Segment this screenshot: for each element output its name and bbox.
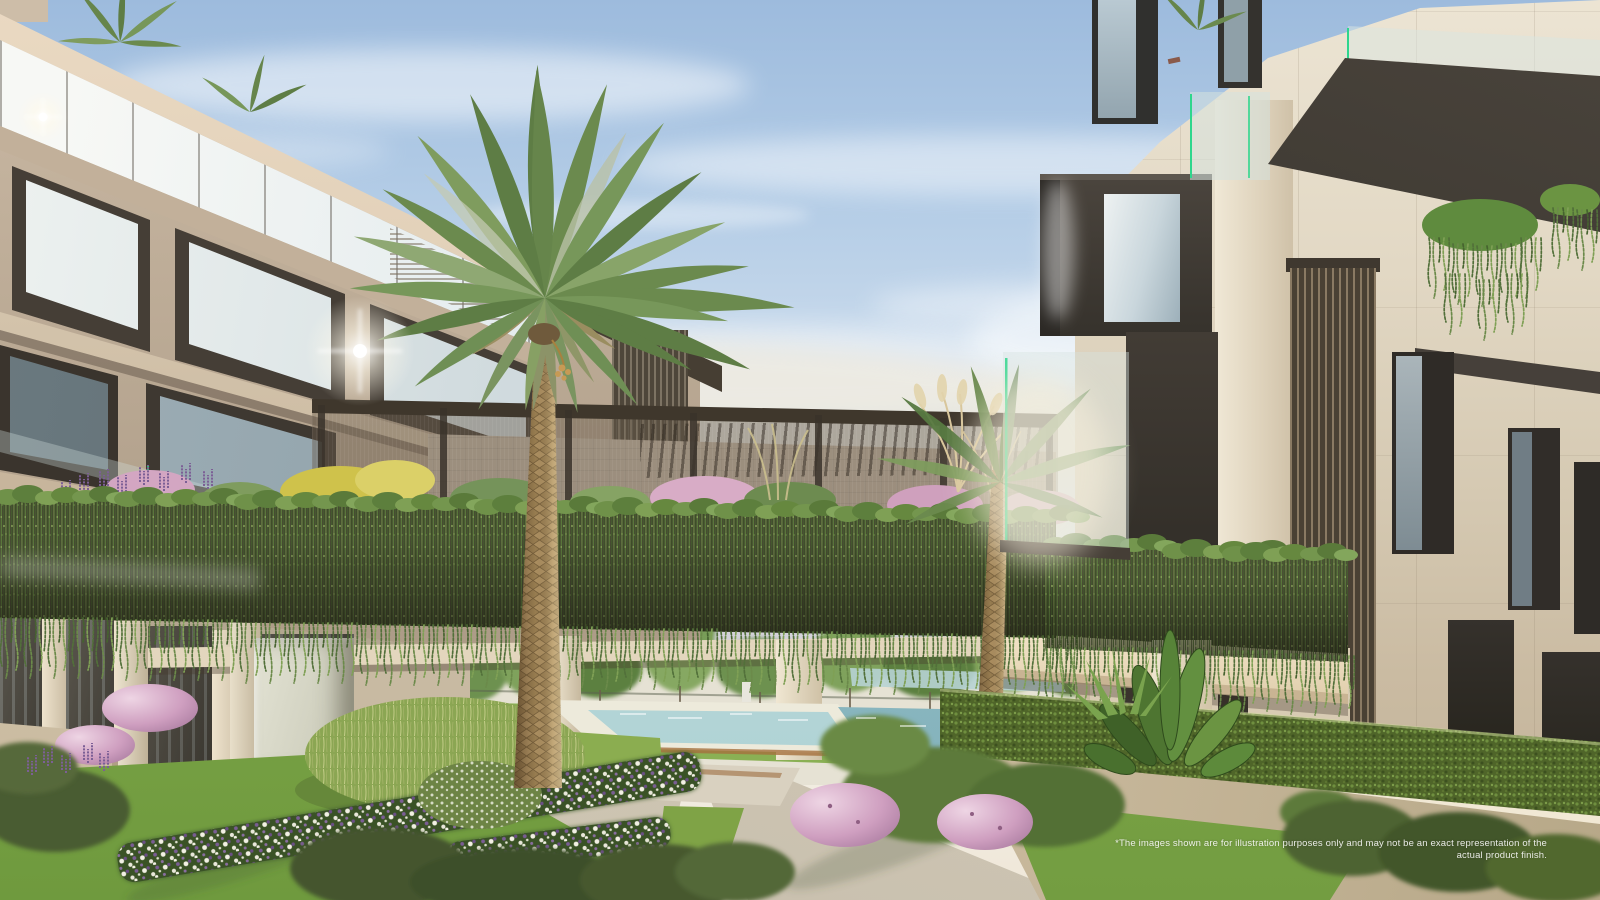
rooftop-plants [58, 0, 1248, 113]
vegetation-layer [0, 0, 1600, 900]
architectural-render: *The images shown are for illustration p… [0, 0, 1600, 900]
hanging-balcony-plants [1422, 184, 1600, 340]
palm-crown-base [528, 323, 560, 345]
disclaimer-text: *The images shown are for illustration p… [1087, 838, 1547, 862]
palm-crown [349, 64, 795, 416]
